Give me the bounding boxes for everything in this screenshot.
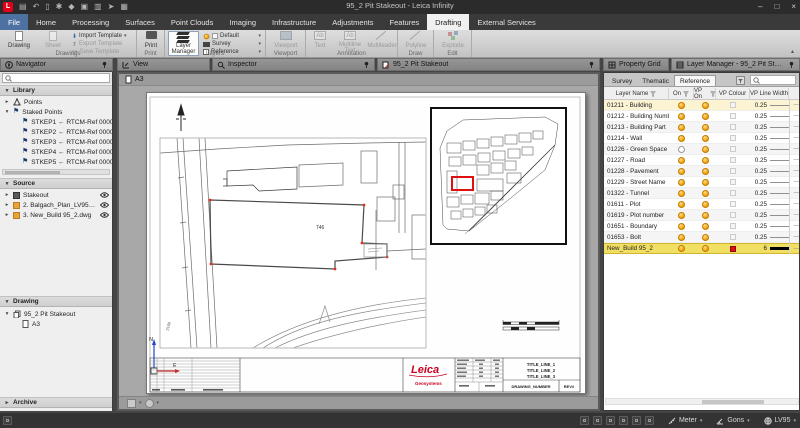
layer-rows: 01211 - Building 0.25 — 01212 - Building… xyxy=(604,100,800,254)
line-style-cut-off: — xyxy=(789,111,800,122)
vp-line-width-value: 0.25 xyxy=(750,113,767,120)
inspector-icon xyxy=(217,61,225,69)
source-icon xyxy=(13,202,20,209)
tree-item-staked-point[interactable]: ⚑ STKEP2 ← RTCM-Ref 0000 (07/10 xyxy=(0,127,113,137)
group-caption: Draw xyxy=(398,51,433,57)
vp-line-width-value: 0.25 xyxy=(750,179,767,186)
survey-layers-icon xyxy=(203,42,210,47)
vp-on-bulb-icon[interactable] xyxy=(702,157,709,164)
source-icon xyxy=(13,212,20,219)
vp-line-width-preview xyxy=(770,171,789,172)
ribbon-tab[interactable]: Adjustments xyxy=(324,14,381,30)
layer-name: 01322 - Tunnel xyxy=(604,188,669,199)
layer-search-input[interactable] xyxy=(750,75,796,85)
chevron-down-icon[interactable]: ▾ xyxy=(157,400,160,406)
print-button[interactable]: Print xyxy=(136,31,166,49)
layer-manager-tab-icon xyxy=(676,61,684,69)
layer-row[interactable]: 01214 - Wall 0.25 — xyxy=(604,133,800,144)
status-bar: Meter▾ Gons▾ LV95▾ xyxy=(0,413,800,428)
section-drawing[interactable]: ▾Drawing xyxy=(0,296,113,307)
navigator-panel-header[interactable]: Navigator xyxy=(0,58,113,71)
overview-inset xyxy=(431,108,566,244)
vp-line-width-preview xyxy=(770,160,789,161)
line-style-cut-off: — xyxy=(789,166,800,177)
viewport-icon xyxy=(280,31,293,42)
layer-row[interactable]: 01653 - Bolt 0.25 — xyxy=(604,232,800,243)
on-bulb-icon[interactable] xyxy=(678,135,685,142)
group-caption: Viewport xyxy=(266,51,305,57)
tree-item-drawing[interactable]: ▾ 95_2 Pit Stakeout xyxy=(0,309,113,319)
line-style-cut-off: — xyxy=(789,122,800,133)
ribbon-tab[interactable]: Surfaces xyxy=(117,14,163,30)
section-archive[interactable]: ▸Archive xyxy=(0,397,113,408)
mail-icon[interactable]: ▥ xyxy=(94,1,102,13)
vp-line-width-value: 0.25 xyxy=(750,102,767,109)
vp-colour-swatch[interactable] xyxy=(730,234,736,240)
line-style-cut-off: — xyxy=(789,221,800,232)
vp-on-bulb-icon[interactable] xyxy=(702,245,709,252)
vp-on-bulb-icon[interactable] xyxy=(702,201,709,208)
sheet-icon xyxy=(47,31,60,42)
vp-colour-swatch[interactable] xyxy=(730,223,736,229)
vp-line-width-preview xyxy=(770,215,789,216)
archive-box-icon[interactable]: ▦ xyxy=(120,1,128,13)
vp-line-width-value: 0.25 xyxy=(750,124,767,131)
view-toolbar: ▾ ▾ xyxy=(119,396,598,409)
visibility-eye-icon[interactable] xyxy=(100,212,109,218)
layer-table-scrollbar[interactable] xyxy=(605,398,799,405)
visibility-eye-icon[interactable] xyxy=(100,192,109,198)
vp-on-bulb-icon[interactable] xyxy=(702,190,709,197)
on-bulb-icon[interactable] xyxy=(678,190,685,197)
points-icon xyxy=(13,98,21,106)
sheet-button[interactable]: Sheet xyxy=(38,31,68,49)
vp-on-bulb-icon[interactable] xyxy=(702,102,709,109)
title-bar: L ▤ ↶ ▯ ✱ ◆ ▣ ▥ ➤ ▦ 95_2 Pit Stakeout - … xyxy=(0,0,800,14)
ruler-icon xyxy=(668,417,676,425)
print-icon xyxy=(145,31,158,42)
line-style-cut-off: — xyxy=(789,144,800,155)
line-style-cut-off: — xyxy=(789,232,800,243)
ribbon: Drawing Sheet ⬇Import Template▾ ⬆Export … xyxy=(0,30,800,58)
svg-text:Leica: Leica xyxy=(411,364,439,376)
vp-colour-swatch[interactable] xyxy=(730,201,736,207)
instrument-icon[interactable]: ◆ xyxy=(68,1,74,13)
column-vp-line-width[interactable]: VP Line Width xyxy=(750,88,789,100)
tree-item-points[interactable]: ▸ Points xyxy=(0,97,113,107)
pin-icon[interactable] xyxy=(588,61,595,68)
on-bulb-icon[interactable] xyxy=(678,124,685,131)
chevron-down-icon[interactable]: ▾ xyxy=(139,400,142,406)
on-bulb-icon[interactable] xyxy=(678,113,685,120)
vp-colour-swatch[interactable] xyxy=(730,124,736,130)
title-line-1: TITLE_LINE_1 xyxy=(527,362,556,367)
column-cut-off xyxy=(789,88,800,100)
title-block-text: TITLE_LINE_1 TITLE_LINE_2 TITLE_LINE_3 D… xyxy=(511,362,575,389)
layer-tab[interactable]: Reference xyxy=(674,75,716,86)
vp-line-width-value: 0.25 xyxy=(750,168,767,175)
layer-name: 01229 - Street Name xyxy=(604,177,669,188)
column-vp-on[interactable]: VP On xyxy=(694,88,716,100)
tab-view[interactable]: View xyxy=(117,58,210,71)
flag-icon: ⚑ xyxy=(22,138,28,146)
pin-icon[interactable] xyxy=(101,61,108,68)
sheet-tab-a3[interactable]: A3 xyxy=(135,76,144,83)
layer-color-icon xyxy=(212,33,218,39)
sheet-page-icon xyxy=(125,75,132,84)
multiline-text-icon: Ab xyxy=(344,31,357,42)
multileader-icon xyxy=(376,31,389,42)
tree-item-staked-points[interactable]: ▾⚑ Staked Points xyxy=(0,107,113,117)
line-style-cut-off: — xyxy=(789,133,800,144)
site-plan-viewport: 746 2160 xyxy=(160,138,426,348)
library-horizontal-scrollbar[interactable] xyxy=(2,169,110,175)
explode-icon xyxy=(447,31,460,42)
table-toggle-icon[interactable] xyxy=(619,416,628,425)
vp-line-width-value: 0.25 xyxy=(750,146,767,153)
layer-row[interactable]: 01212 - Building Number 0.25 — xyxy=(604,111,800,122)
tree-item-staked-point[interactable]: ⚑ STKEP4 ← RTCM-Ref 0000 (07/10 xyxy=(0,147,113,157)
collapse-ribbon-icon[interactable]: ▴ xyxy=(791,48,794,55)
on-bulb-icon[interactable] xyxy=(678,234,685,241)
scale-bar xyxy=(503,320,559,330)
ribbon-group-print: Print Print xyxy=(137,30,165,57)
ribbon-tab[interactable]: External Services xyxy=(469,14,543,30)
group-caption: Annotation xyxy=(306,51,397,57)
layer-row[interactable]: 01211 - Building 0.25 — xyxy=(604,100,800,111)
drawing-button[interactable]: Drawing xyxy=(4,31,34,49)
leica-app-icon[interactable]: L xyxy=(3,2,13,12)
vp-on-bulb-icon[interactable] xyxy=(702,135,709,142)
north-axis-label: N xyxy=(149,337,153,343)
layer-row[interactable]: 01619 - Plot number 0.25 — xyxy=(604,210,800,221)
line-style-cut-off: — xyxy=(789,100,800,111)
vp-line-width-preview xyxy=(770,127,789,128)
layer-name: 01214 - Wall xyxy=(604,133,669,144)
title-line-2: TITLE_LINE_2 xyxy=(527,368,556,373)
navigator-icon xyxy=(5,61,13,69)
on-bulb-icon[interactable] xyxy=(678,223,685,230)
layer-tab[interactable]: Survey xyxy=(607,76,637,86)
pin-icon[interactable] xyxy=(788,61,795,68)
tab-inspector[interactable]: Inspector xyxy=(212,58,375,71)
on-bulb-icon[interactable] xyxy=(678,245,685,252)
drawing-pages-icon xyxy=(13,310,21,318)
vp-colour-swatch[interactable] xyxy=(730,157,736,163)
tree-item-staked-point[interactable]: ⚑ STKEP5 ← RTCM-Ref 0000 (07/10 xyxy=(0,157,113,167)
ribbon-group-viewport: Viewport Viewport xyxy=(266,30,306,57)
on-bulb-icon[interactable] xyxy=(678,102,685,109)
multileader-button[interactable]: Multileader xyxy=(366,31,398,49)
vp-colour-swatch[interactable] xyxy=(730,146,736,152)
layer-filter-icon[interactable] xyxy=(736,76,745,85)
pin-icon[interactable] xyxy=(363,61,370,68)
tree-item-source[interactable]: ▸ 2. Balgach_Plan_LV95_2.dwg xyxy=(0,200,113,210)
vp-line-width-preview xyxy=(770,204,789,205)
flag-icon: ⚑ xyxy=(22,128,28,136)
ribbon-tab[interactable]: Drafting xyxy=(427,14,469,30)
vp-line-width-value: 0.25 xyxy=(750,157,767,164)
tree-item-staked-point[interactable]: ⚑ STKEP1 ← RTCM-Ref 0000 (07/10 xyxy=(0,117,113,127)
layer-row[interactable]: 01322 - Tunnel 0.25 — xyxy=(604,188,800,199)
layer-name: 01213 - Building Part xyxy=(604,122,669,133)
layer-row[interactable]: New_Build 95_2 6 — xyxy=(604,243,800,254)
navigator-search-row xyxy=(0,72,112,84)
layer-name: 01226 - Green Space xyxy=(604,144,669,155)
vp-line-width-value: 0.25 xyxy=(750,190,767,197)
vp-line-width-value: 6 xyxy=(750,245,767,252)
angle-icon xyxy=(716,417,724,425)
maximize-button[interactable]: □ xyxy=(774,0,779,13)
on-bulb-icon[interactable] xyxy=(678,179,685,186)
tree-item-staked-point[interactable]: ⚑ STKEP3 ← RTCM-Ref 0000 (07/10 xyxy=(0,137,113,147)
layer-name: New_Build 95_2 xyxy=(604,243,669,254)
drawing-icon xyxy=(13,31,26,42)
rev-number: REV# xyxy=(564,384,575,389)
vp-line-width-value: 0.25 xyxy=(750,223,767,230)
ribbon-tab[interactable]: Point Clouds xyxy=(163,14,222,30)
vp-colour-swatch[interactable] xyxy=(730,212,736,218)
layer-table-header: Layer Name On VP On VP Colour VP Line Wi… xyxy=(604,88,800,100)
app-window: L ▤ ↶ ▯ ✱ ◆ ▣ ▥ ➤ ▦ 95_2 Pit Stakeout - … xyxy=(0,0,800,428)
ribbon-group-drawings: Drawing Sheet ⬇Import Template▾ ⬆Export … xyxy=(0,30,137,57)
default-layer-select[interactable]: Default▾ xyxy=(203,32,263,40)
vp-on-bulb-icon[interactable] xyxy=(702,179,709,186)
view-icon xyxy=(122,61,130,69)
polyline-icon xyxy=(410,31,423,42)
text-button[interactable]: Ab Text xyxy=(308,31,332,49)
navigator-search-input[interactable] xyxy=(2,73,110,83)
vp-line-width-preview xyxy=(770,105,789,106)
layer-table: Layer Name On VP On VP Colour VP Line Wi… xyxy=(604,88,800,410)
bulb-icon xyxy=(204,33,210,39)
text-icon: Ab xyxy=(314,31,327,42)
vp-colour-swatch[interactable] xyxy=(730,246,736,252)
tree-item-sheet-a3[interactable]: A3 xyxy=(0,319,113,329)
export-icon[interactable]: ➤ xyxy=(108,1,115,13)
tree-item-source[interactable]: ▸ Stakeout xyxy=(0,190,113,200)
vp-line-width-preview xyxy=(770,116,789,117)
drawing-canvas[interactable]: 746 2160 xyxy=(119,86,598,396)
vp-colour-swatch[interactable] xyxy=(730,179,736,185)
layer-row[interactable]: 01213 - Building Part 0.25 — xyxy=(604,122,800,133)
parcel-number-label: 746 xyxy=(316,225,325,231)
layer-name: 01212 - Building Number xyxy=(604,111,669,122)
svg-text:Geosystems: Geosystems xyxy=(415,381,442,386)
ribbon-tab[interactable]: File xyxy=(0,14,28,30)
ribbon-tab[interactable]: Home xyxy=(28,14,64,30)
layer-manager-icon xyxy=(177,32,190,43)
ribbon-group-annotation: Ab Text Ab Multiline Text Multileader An… xyxy=(306,30,398,57)
visibility-eye-icon[interactable] xyxy=(100,202,109,208)
group-caption: Edit xyxy=(434,51,471,57)
filter-funnel-icon[interactable] xyxy=(710,91,715,97)
navigator-toggle-icon[interactable] xyxy=(3,416,12,425)
line-style-cut-off: — xyxy=(789,243,800,254)
source-icon xyxy=(13,192,20,199)
ribbon-tab[interactable]: Features xyxy=(382,14,428,30)
tab-drawing-95-2-pit-stakeout[interactable]: 95_2 Pit Stakeout xyxy=(377,58,600,71)
vp-on-bulb-icon[interactable] xyxy=(702,223,709,230)
group-caption: Print xyxy=(137,51,164,57)
on-bulb-icon[interactable] xyxy=(678,157,685,164)
vp-line-width-preview xyxy=(770,237,789,238)
layer-name: 01228 - Pavement xyxy=(604,166,669,177)
vp-colour-swatch[interactable] xyxy=(730,102,736,108)
flag-icon: ⚑ xyxy=(22,148,28,156)
on-bulb-icon[interactable] xyxy=(678,146,685,153)
flag-icon: ⚑ xyxy=(22,118,28,126)
drawing-doc-icon xyxy=(382,61,390,69)
layer-name: 01619 - Plot number xyxy=(604,210,669,221)
vp-colour-swatch[interactable] xyxy=(730,113,736,119)
vp-colour-swatch[interactable] xyxy=(730,190,736,196)
line-style-cut-off: — xyxy=(789,177,800,188)
tab-layer-manager[interactable]: Layer Manager - 95_2 Pit Stakeout - A3 xyxy=(671,58,800,71)
ribbon-tab[interactable]: Infrastructure xyxy=(264,14,324,30)
import-template-button[interactable]: ⬇Import Template▾ xyxy=(72,32,126,40)
unit-angle[interactable]: Gons▾ xyxy=(716,417,749,425)
sheet-tab-bar: A3 xyxy=(119,74,598,86)
line-style-cut-off: — xyxy=(789,199,800,210)
vp-line-width-value: 0.25 xyxy=(750,212,767,219)
ribbon-tab-bar: File Home Processing Surfaces Point Clou… xyxy=(0,14,800,30)
vp-colour-swatch[interactable] xyxy=(730,135,736,141)
snap-toggle-icon[interactable] xyxy=(580,416,589,425)
report-icon[interactable]: ▣ xyxy=(81,1,89,13)
layer-row[interactable]: 01228 - Pavement 0.25 — xyxy=(604,166,800,177)
vp-on-bulb-icon[interactable] xyxy=(702,212,709,219)
flag-icon: ⚑ xyxy=(13,108,19,116)
vp-line-width-value: 0.25 xyxy=(750,201,767,208)
layer-manager-panel: Survey Thematic Reference Layer Name On xyxy=(603,72,800,411)
tab-property-grid[interactable]: Property Grid xyxy=(603,58,669,71)
rotate-view-icon[interactable] xyxy=(145,399,154,408)
vp-on-bulb-icon[interactable] xyxy=(702,124,709,131)
quick-access-toolbar: L ▤ ↶ ▯ ✱ ◆ ▣ ▥ ➤ ▦ xyxy=(3,1,128,13)
vp-line-width-preview xyxy=(770,149,789,150)
grid-toggle-icon[interactable] xyxy=(606,416,615,425)
ribbon-group-layers: Layer Manager Default▾ Survey▾ Reference… xyxy=(165,30,266,57)
layer-row[interactable]: 01227 - Road 0.25 — xyxy=(604,155,800,166)
flag-icon: ⚑ xyxy=(22,158,28,166)
vp-line-width-preview xyxy=(770,193,789,194)
a3-sheet[interactable]: 746 2160 xyxy=(146,92,586,394)
filter-funnel-icon[interactable] xyxy=(650,91,656,97)
north-arrow xyxy=(176,105,186,131)
ribbon-group-draw: Polyline Draw xyxy=(398,30,434,57)
drawing-number: DRAWING_NUMBER xyxy=(511,384,550,389)
settings-gear-icon[interactable]: ✱ xyxy=(56,1,63,13)
line-style-cut-off: — xyxy=(789,188,800,199)
tree-item-source[interactable]: ▸ 3. New_Build 95_2.dwg xyxy=(0,210,113,220)
search-icon xyxy=(753,77,760,84)
search-icon xyxy=(5,75,12,82)
ribbon-tab[interactable]: Processing xyxy=(64,14,117,30)
vp-on-bulb-icon[interactable] xyxy=(702,168,709,175)
section-source[interactable]: ▾Source xyxy=(0,178,113,189)
layers-toggle-icon[interactable] xyxy=(632,416,641,425)
polyline-button[interactable]: Polyline xyxy=(401,31,431,49)
vp-line-width-value: 0.25 xyxy=(750,135,767,142)
on-bulb-icon[interactable] xyxy=(678,201,685,208)
column-vp-colour[interactable]: VP Colour xyxy=(716,88,750,100)
layer-row[interactable]: 01651 - Boundary 0.25 — xyxy=(604,221,800,232)
vp-on-bulb-icon[interactable] xyxy=(702,146,709,153)
ribbon-group-edit: Explode Edit xyxy=(434,30,472,57)
undo-icon[interactable]: ↶ xyxy=(33,1,40,13)
group-caption: Drawings xyxy=(0,51,136,57)
vp-on-bulb-icon[interactable] xyxy=(702,113,709,120)
coordinate-system[interactable]: LV95▾ xyxy=(764,417,796,425)
group-caption: Layers xyxy=(165,51,265,57)
vp-on-bulb-icon[interactable] xyxy=(702,234,709,241)
filter-toggle-icon[interactable] xyxy=(645,416,654,425)
explode-button[interactable]: Explode xyxy=(438,31,468,49)
on-bulb-icon[interactable] xyxy=(678,168,685,175)
export-template-button[interactable]: ⬆Export Template xyxy=(72,40,122,48)
survey-layers-button[interactable]: Survey▾ xyxy=(203,40,263,48)
window-title: 95_2 Pit Stakeout - Leica Infinity xyxy=(250,1,550,10)
on-bulb-icon[interactable] xyxy=(678,212,685,219)
vp-line-width-preview xyxy=(770,247,789,250)
navigator-panel: ▾Library ▸ Points ▾⚑ Staked Points ⚑ STK… xyxy=(0,72,113,411)
vp-line-width-preview xyxy=(770,226,789,227)
unit-distance[interactable]: Meter▾ xyxy=(668,417,702,425)
layer-row[interactable]: 01229 - Street Name 0.25 — xyxy=(604,177,800,188)
globe-icon xyxy=(764,417,772,425)
close-button[interactable]: × xyxy=(791,0,796,13)
save-icon[interactable]: ▤ xyxy=(19,1,27,13)
section-library[interactable]: ▾Library xyxy=(0,85,113,96)
sheet-drawing: 746 2160 xyxy=(147,93,587,395)
vp-line-width-preview xyxy=(770,138,789,139)
vp-line-width-value: 0.25 xyxy=(750,234,767,241)
view-area: A3 xyxy=(117,72,600,411)
paper-background-icon[interactable] xyxy=(127,399,136,408)
layer-name: 01211 - Building xyxy=(604,100,669,111)
viewport-button[interactable]: Viewport xyxy=(271,31,301,49)
property-grid-icon xyxy=(608,61,616,69)
vp-line-width-preview xyxy=(770,182,789,183)
line-style-cut-off: — xyxy=(789,210,800,221)
column-on[interactable]: On xyxy=(669,88,694,100)
minimize-button[interactable]: – xyxy=(758,0,762,13)
filter-funnel-icon[interactable] xyxy=(683,91,689,97)
layer-name: 01653 - Bolt xyxy=(604,232,669,243)
leica-logo: Leica Geosystems xyxy=(409,364,447,386)
layer-name: 01227 - Road xyxy=(604,155,669,166)
sheet-page-icon xyxy=(22,320,29,328)
line-style-cut-off: — xyxy=(789,155,800,166)
column-layer-name[interactable]: Layer Name xyxy=(604,88,669,100)
vp-colour-swatch[interactable] xyxy=(730,168,736,174)
layer-tab[interactable]: Thematic xyxy=(637,76,674,86)
ribbon-tab[interactable]: Imaging xyxy=(221,14,264,30)
title-line-3: TITLE_LINE_3 xyxy=(527,374,556,379)
layer-row[interactable]: 01611 - Plot 0.25 — xyxy=(604,199,800,210)
delete-icon[interactable]: ▯ xyxy=(45,1,49,13)
layer-name: 01611 - Plot xyxy=(604,199,669,210)
layer-row[interactable]: 01226 - Green Space 0.25 — xyxy=(604,144,800,155)
inspector-toggle-icon[interactable] xyxy=(593,416,602,425)
layer-name: 01651 - Boundary xyxy=(604,221,669,232)
